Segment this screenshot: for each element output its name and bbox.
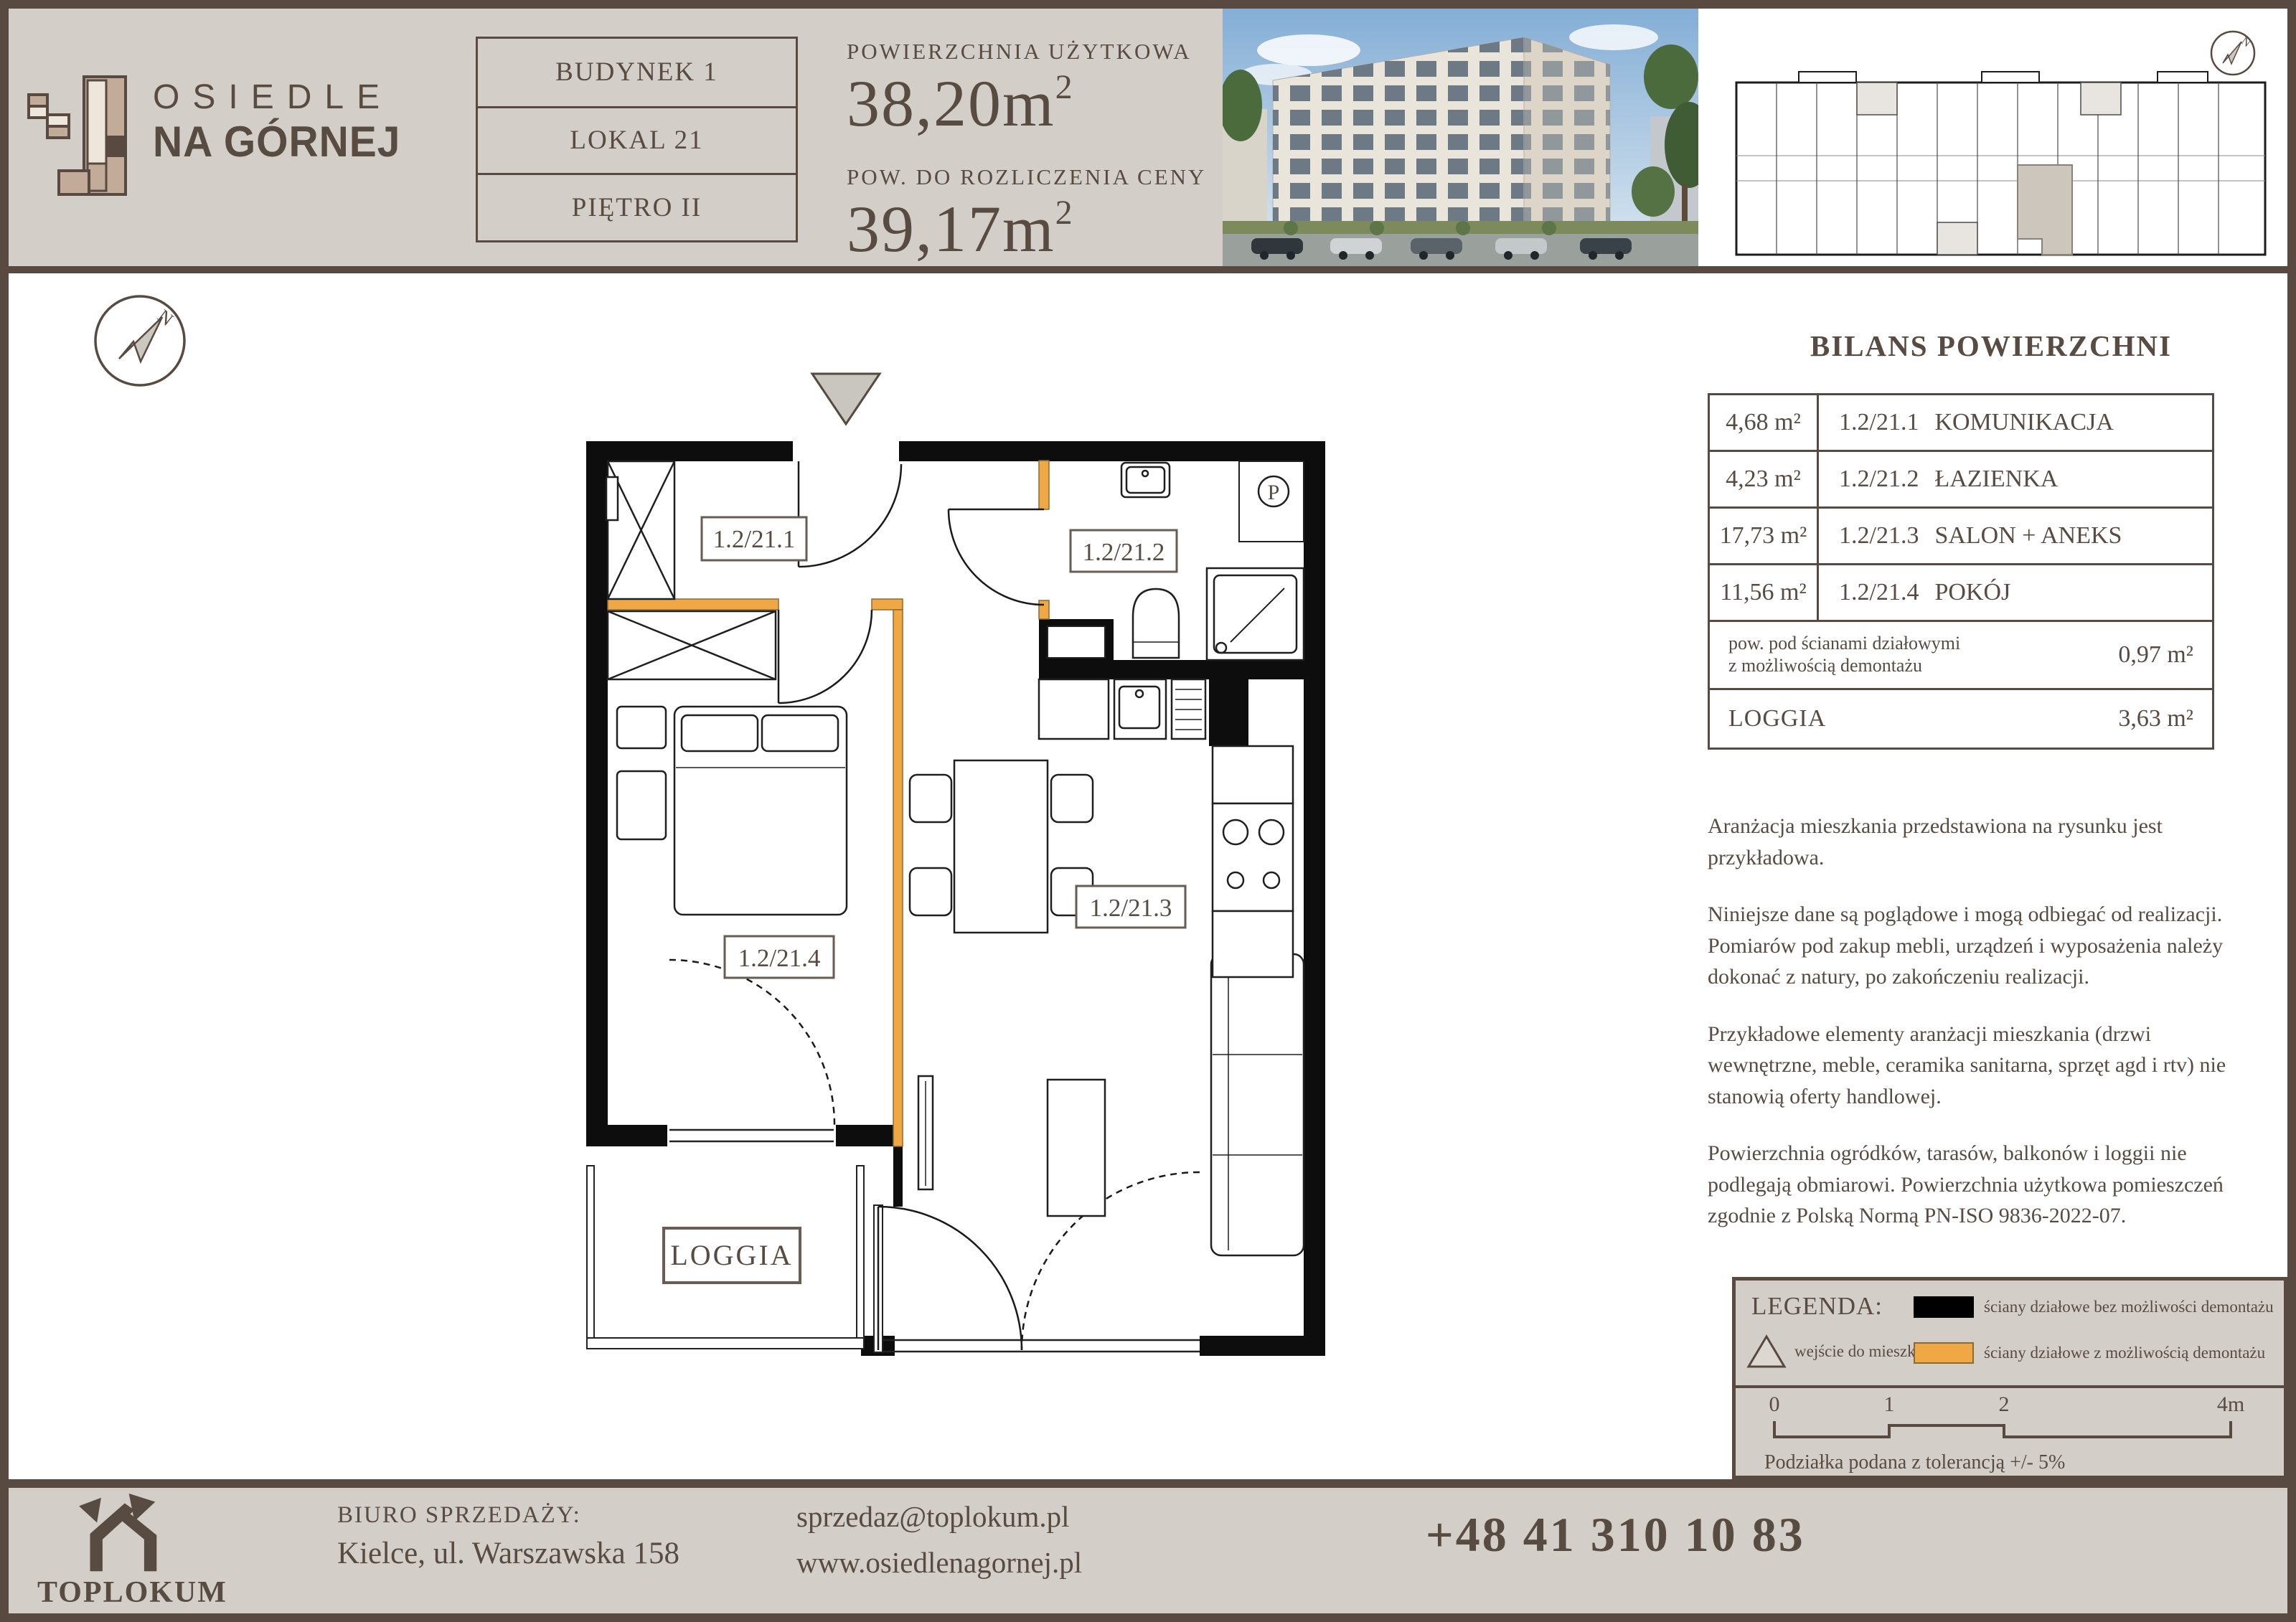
- row-room: SALON + ANEKS: [1934, 522, 2122, 550]
- row-area: 4,68 m²: [1710, 395, 1819, 450]
- overview-compass-icon: N: [2211, 32, 2254, 75]
- billing-area-sup: 2: [1055, 194, 1073, 232]
- floor-overview-plan: N: [1698, 9, 2287, 266]
- bath-label: 1.2/21.2: [1083, 538, 1165, 566]
- sales-office-block: BIURO SPRZEDAŻY: Kielce, ul. Warszawska …: [337, 1502, 679, 1571]
- balance-table: 4,68 m² 1.2/21.1 KOMUNIKACJA 4,23 m² 1.2…: [1708, 393, 2214, 750]
- disclaimer-block: Aranżacja mieszkania przedstawiona na ry…: [1708, 811, 2229, 1258]
- phone-number[interactable]: +48 41 310 10 83: [1426, 1507, 1805, 1563]
- apartment-card: OSIEDLE NA GÓRNEJ BUDYNEK 1 LOKAL 21 PIĘ…: [0, 0, 2296, 1622]
- toplokum-brand-text: TOPLOKUM: [37, 1575, 210, 1610]
- legend-removable-item: ściany działowe z możliwością demontażu: [1914, 1342, 2265, 1364]
- osiedle-logo-icon: [27, 75, 128, 197]
- usable-area-value: 38,20m2: [847, 70, 1227, 136]
- row-code: 1.2/21.3: [1839, 522, 1919, 550]
- removable-wall-swatch: [1914, 1342, 1974, 1364]
- floor-cell: PIĘTRO II: [478, 173, 796, 240]
- furniture: [606, 461, 1304, 1255]
- billing-area-number: 39,17m: [847, 192, 1055, 265]
- building-cell: BUDYNEK 1: [478, 39, 796, 106]
- scale-tick-3: 4m: [2217, 1392, 2244, 1416]
- row-room: POKÓJ: [1934, 579, 2010, 606]
- usable-area-sup: 2: [1055, 68, 1073, 106]
- logo-line-1: OSIEDLE: [153, 80, 414, 115]
- building-photo: [1223, 9, 1698, 266]
- table-row: 17,73 m² 1.2/21.3 SALON + ANEKS: [1710, 506, 2212, 563]
- disclaimer-paragraph: Powierzchnia ogródków, tarasów, balkonów…: [1708, 1138, 2229, 1232]
- scale-tolerance-note: Podziałka podana z tolerancją +/- 5%: [1764, 1451, 2065, 1474]
- washer-symbol: P: [1258, 476, 1289, 506]
- entrance-marker-triangle: [812, 374, 880, 424]
- usable-area-label: POWIERZCHNIA UŻYTKOWA: [847, 39, 1227, 65]
- scale-section: 0 1 2 4m Podziałka podana z tolerancją +…: [1736, 1388, 2284, 1476]
- table-row: 4,68 m² 1.2/21.1 KOMUNIKACJA: [1710, 395, 2212, 450]
- table-row: 11,56 m² 1.2/21.4 POKÓJ: [1710, 563, 2212, 620]
- sales-office-address: Kielce, ul. Warszawska 158: [337, 1536, 679, 1571]
- footer-band: TOPLOKUM BIURO SPRZEDAŻY: Kielce, ul. Wa…: [9, 1479, 2287, 1622]
- living-label: 1.2/21.3: [1090, 894, 1172, 922]
- row-name: 1.2/21.1 KOMUNIKACJA: [1819, 395, 2212, 450]
- loggia-row-value: 3,63 m²: [2118, 705, 2193, 732]
- email-text[interactable]: sprzedaz@toplokum.pl: [796, 1499, 1082, 1534]
- row-area: 17,73 m²: [1710, 509, 1819, 563]
- legend-box: LEGENDA: wejście do mieszkania ściany dz…: [1732, 1277, 2287, 1479]
- partition-label: pow. pod ścianami działowymi z możliwośc…: [1728, 633, 1960, 676]
- scale-bar: 0 1 2 4m: [1753, 1391, 2284, 1448]
- compass-icon: N: [86, 287, 194, 395]
- osiedle-logo-text: OSIEDLE NA GÓRNEJ: [153, 80, 414, 164]
- partition-label-line2: z możliwością demontażu: [1728, 655, 1960, 677]
- balance-title: BILANS POWIERZCHNI: [1708, 329, 2274, 363]
- scale-tick-2: 2: [1999, 1392, 2010, 1416]
- row-name: 1.2/21.2 ŁAZIENKA: [1819, 452, 2212, 506]
- row-name: 1.2/21.4 POKÓJ: [1819, 565, 2212, 620]
- scale-tick-0: 0: [1769, 1392, 1780, 1416]
- row-name: 1.2/21.3 SALON + ANEKS: [1819, 509, 2212, 563]
- row-area: 11,56 m²: [1710, 565, 1819, 620]
- loggia-row-label: LOGGIA: [1728, 705, 1826, 732]
- row-room: ŁAZIENKA: [1934, 466, 2058, 493]
- sales-office-label: BIURO SPRZEDAŻY:: [337, 1502, 679, 1529]
- disclaimer-paragraph: Aranżacja mieszkania przedstawiona na ry…: [1708, 811, 2229, 873]
- scale-tick-1: 1: [1884, 1392, 1895, 1416]
- apartment-floor-plan: P 1.2/21.1 1.2/21.2 1.2/21.3 1.2/21.4 LO…: [574, 362, 1335, 1438]
- toplokum-logo-icon: [60, 1492, 182, 1575]
- billing-area-label: POW. DO ROZLICZENIA CENY: [847, 164, 1227, 190]
- row-room: KOMUNIKACJA: [1934, 409, 2113, 436]
- disclaimer-paragraph: Przykładowe elementy aranżacji mieszkani…: [1708, 1019, 2229, 1113]
- usable-area-number: 38,20m: [847, 67, 1055, 140]
- fixed-wall-label: ściany działowe bez możliwości demontażu: [1984, 1298, 2274, 1316]
- header-band: OSIEDLE NA GÓRNEJ BUDYNEK 1 LOKAL 21 PIĘ…: [9, 9, 2287, 273]
- partition-label-line1: pow. pod ścianami działowymi: [1728, 633, 1960, 655]
- row-code: 1.2/21.4: [1839, 579, 1919, 606]
- area-summary: POWIERZCHNIA UŻYTKOWA 38,20m2 POW. DO RO…: [847, 30, 1227, 261]
- disclaimer-paragraph: Niniejsze dane są poglądowe i mogą odbie…: [1708, 899, 2229, 993]
- table-row: 4,23 m² 1.2/21.2 ŁAZIENKA: [1710, 450, 2212, 506]
- washer-label: P: [1268, 481, 1280, 504]
- hall-label: 1.2/21.1: [713, 525, 796, 553]
- loggia-row: LOGGIA 3,63 m²: [1710, 688, 2212, 748]
- fixed-wall-swatch: [1914, 1296, 1974, 1318]
- loggia-label: LOGGIA: [670, 1239, 793, 1271]
- row-code: 1.2/21.1: [1839, 409, 1919, 436]
- logo-line-2: NA GÓRNEJ: [153, 121, 400, 164]
- partition-row: pow. pod ścianami działowymi z możliwośc…: [1710, 620, 2212, 688]
- legend-section: LEGENDA: wejście do mieszkania ściany dz…: [1736, 1281, 2284, 1388]
- entrance-triangle-icon: [1746, 1334, 1787, 1369]
- row-code: 1.2/21.2: [1839, 466, 1919, 493]
- legend-title: LEGENDA:: [1751, 1292, 1883, 1321]
- bathroom-shaft-niche: [1048, 626, 1105, 658]
- bedroom-label: 1.2/21.4: [738, 944, 821, 972]
- unit-cell: LOKAL 21: [478, 106, 796, 174]
- billing-area-value: 39,17m2: [847, 196, 1227, 261]
- legend-fixed-item: ściany działowe bez możliwości demontażu: [1914, 1296, 2274, 1318]
- website-text[interactable]: www.osiedlenagornej.pl: [796, 1545, 1082, 1580]
- row-area: 4,23 m²: [1710, 452, 1819, 506]
- removable-wall-label: ściany działowe z możliwością demontażu: [1984, 1344, 2265, 1362]
- contact-block: sprzedaz@toplokum.pl www.osiedlenagornej…: [796, 1499, 1082, 1580]
- partition-value: 0,97 m²: [2118, 641, 2193, 669]
- unit-info-table: BUDYNEK 1 LOKAL 21 PIĘTRO II: [476, 37, 798, 242]
